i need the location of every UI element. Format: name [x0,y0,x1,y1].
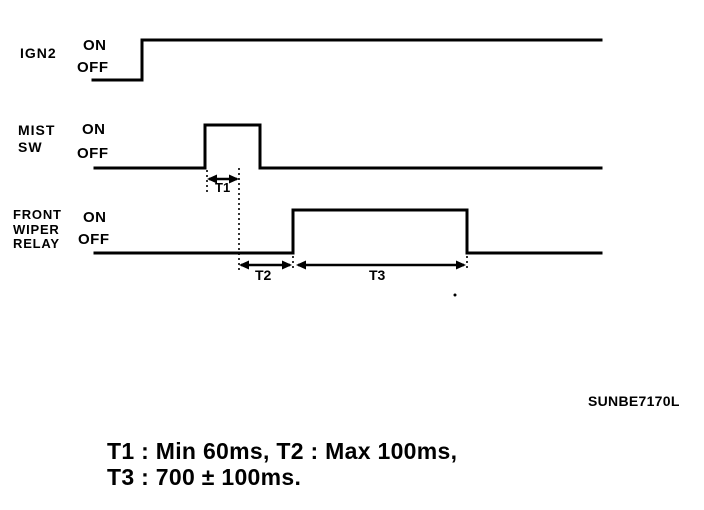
signal-ign2-waveform [93,40,601,80]
figure-code: SUNBE7170L [588,393,680,409]
front-wiper-relay-on-label: ON [83,209,107,226]
ign2-on-label: ON [83,37,107,54]
caption-line-2: T3 : 700 ± 100ms. [107,464,457,490]
waveform-plot [0,0,704,510]
signal-label-front-wiper-relay: FRONT WIPER RELAY [13,208,62,252]
signal-front-wiper-relay-waveform [95,210,601,253]
mist-sw-on-label: ON [82,121,106,138]
t2-marker-label: T2 [255,267,271,283]
marker-t2-right-arrowhead [282,261,292,270]
marker-t2-left-arrowhead [239,261,249,270]
scan-speck [454,294,457,297]
marker-t1-right-arrowhead [229,175,239,184]
caption-line-1: T1 : Min 60ms, T2 : Max 100ms, [107,438,457,464]
timing-caption: T1 : Min 60ms, T2 : Max 100ms, T3 : 700 … [107,438,457,490]
marker-t3-right-arrowhead [456,261,466,270]
t1-marker-label: T1 [215,180,230,195]
front-wiper-relay-off-label: OFF [78,231,110,248]
signal-label-line: SW [18,139,55,156]
signal-label-line: IGN2 [20,45,57,61]
signal-label-line: WIPER [13,223,62,238]
signal-label-line: FRONT [13,208,62,223]
signal-label-mist-sw: MIST SW [18,122,55,156]
signal-label-ign2: IGN2 [20,45,57,61]
mist-sw-off-label: OFF [77,145,109,162]
signal-label-line: MIST [18,122,55,139]
timing-diagram-page: IGN2 ON OFF MIST SW ON OFF FRONT WIPER R… [0,0,704,510]
signal-label-line: RELAY [13,237,62,252]
ign2-off-label: OFF [77,59,109,76]
signal-mist-sw-waveform [95,125,601,168]
t3-marker-label: T3 [369,267,385,283]
marker-t3-left-arrowhead [296,261,306,270]
